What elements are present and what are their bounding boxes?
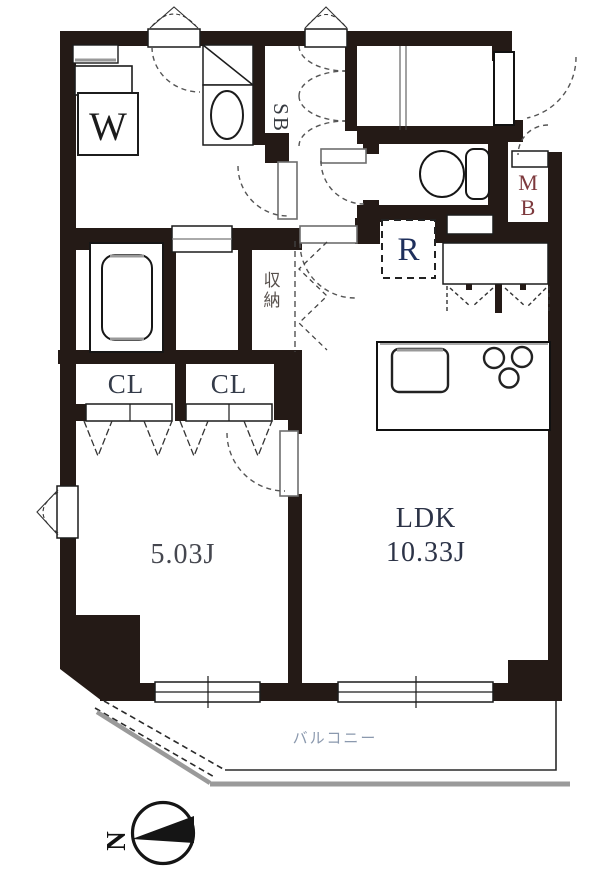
toilet	[420, 149, 489, 199]
kitchen-sink	[392, 349, 448, 392]
meter-box-label: M B	[508, 168, 548, 222]
wall-segment	[238, 240, 252, 353]
wall-segment	[60, 31, 76, 668]
fold-door-chevron	[244, 421, 272, 456]
casement-arc	[307, 15, 345, 27]
refrigerator-label: R	[382, 222, 435, 278]
storage-accordion-door	[295, 241, 327, 352]
fold-door-chevron	[180, 421, 208, 456]
balcony-label: バルコニー	[260, 726, 410, 748]
wall-segment	[548, 152, 562, 222]
cupboard-door-swing	[528, 288, 546, 306]
wall-segment	[175, 358, 186, 421]
closet-door-track	[86, 404, 172, 421]
stove-burner	[500, 369, 519, 388]
door-panels	[278, 149, 366, 496]
cupboard-door-swing	[473, 288, 493, 306]
compass-north-label: N	[97, 826, 135, 856]
kitchen	[377, 342, 550, 430]
stove-burner	[512, 347, 532, 367]
door-panel	[280, 431, 298, 496]
door-panel	[321, 149, 366, 163]
casement-triangle	[150, 7, 198, 28]
shoe-box-door-arc	[299, 96, 345, 121]
fold-door-chevron	[84, 421, 112, 456]
closet-right-label: CL	[193, 368, 265, 400]
window-swing-arc	[152, 47, 200, 92]
washbasin	[211, 91, 243, 139]
washer-label: W	[80, 100, 136, 152]
compass	[132, 803, 194, 864]
entrance-door-panel	[494, 52, 514, 125]
ldk-label: LDK 10.33J	[346, 502, 506, 570]
toilet-tank	[466, 149, 489, 199]
hinge-mark	[466, 284, 472, 290]
casement-arc	[43, 492, 58, 533]
balcony-edge-diagonal	[95, 708, 216, 778]
wall-segment	[162, 242, 176, 353]
accordion-fold	[299, 242, 327, 350]
washer-pan	[75, 66, 132, 95]
bedroom-area-label: 5.03J	[103, 538, 263, 572]
cupboard-door-swing	[450, 288, 470, 306]
shoe-box-door-arc	[299, 46, 345, 71]
wall-segment	[252, 43, 265, 145]
stove-burner	[484, 348, 504, 368]
balcony-edge-diagonal	[104, 701, 225, 770]
hinge-mark	[520, 284, 526, 290]
window	[148, 29, 200, 47]
cupboard-divider	[495, 284, 502, 313]
meter-box-label-m: M	[518, 170, 538, 195]
door-panel	[300, 226, 357, 243]
window	[305, 29, 347, 47]
hall-door-arc	[300, 243, 355, 298]
closet-fold-doors	[84, 421, 272, 456]
kitchen-cupboard	[443, 243, 548, 284]
wall-segment	[274, 358, 302, 420]
window	[57, 486, 78, 538]
casement-arc	[152, 14, 196, 26]
shoe-box-door-arc	[299, 71, 345, 96]
wall-segment	[355, 218, 380, 244]
wall-segment	[288, 494, 302, 684]
bathroom	[90, 243, 163, 352]
casement-triangle	[305, 7, 347, 28]
balcony-shadow	[97, 712, 210, 783]
closet-left-label: CL	[90, 368, 162, 400]
shoe-box-door-arc	[299, 121, 345, 146]
cupboard-door-swing	[505, 288, 525, 306]
storage-label: 収納	[257, 256, 283, 326]
wall-segment	[357, 126, 492, 144]
toilet-bowl	[420, 151, 464, 197]
wall-segment	[548, 222, 562, 663]
floor-plan: W SB M B R 収納 CL CL 5.03J LDK 10.33J バルコ…	[0, 0, 610, 869]
compass-needle	[132, 816, 194, 843]
entrance-door-arc	[527, 57, 576, 118]
door-panel	[278, 162, 297, 219]
casement-triangle	[37, 490, 58, 535]
fold-door-chevron	[144, 421, 172, 456]
wall-segment	[60, 31, 512, 46]
vanity-unit	[203, 45, 253, 145]
bathtub	[102, 255, 152, 340]
toilet-door-arc	[321, 161, 364, 204]
shoe-box-label: SB	[269, 96, 293, 140]
bedroom-door-arc	[227, 433, 285, 491]
ldk-name: LDK	[396, 502, 457, 536]
ldk-area: 10.33J	[386, 536, 466, 570]
kitchen-window	[447, 215, 493, 234]
meter-box-label-b: B	[521, 195, 536, 220]
